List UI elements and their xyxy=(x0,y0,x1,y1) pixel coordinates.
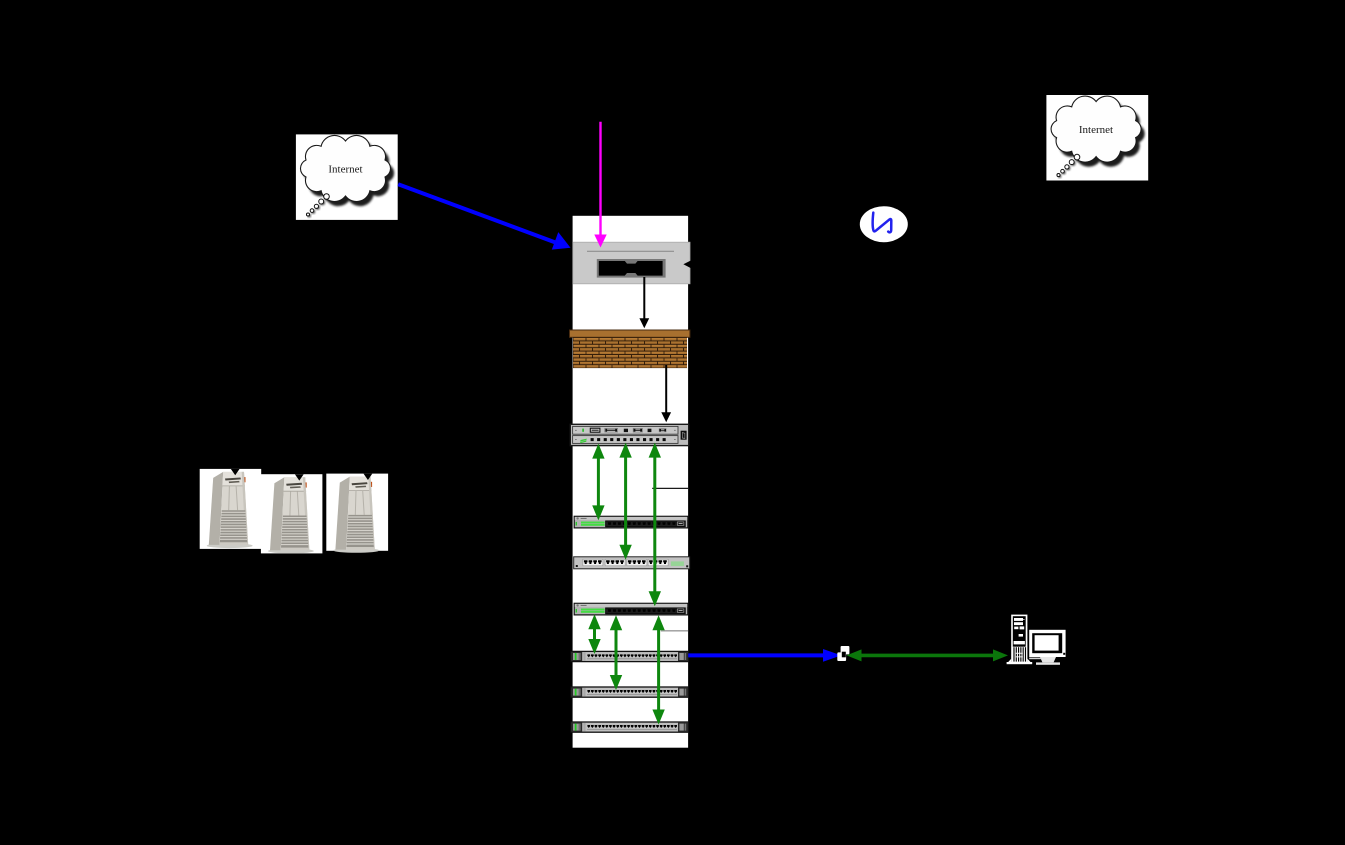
svg-text:Internet: Internet xyxy=(1079,124,1113,136)
svg-text:Internet: Internet xyxy=(328,164,362,176)
